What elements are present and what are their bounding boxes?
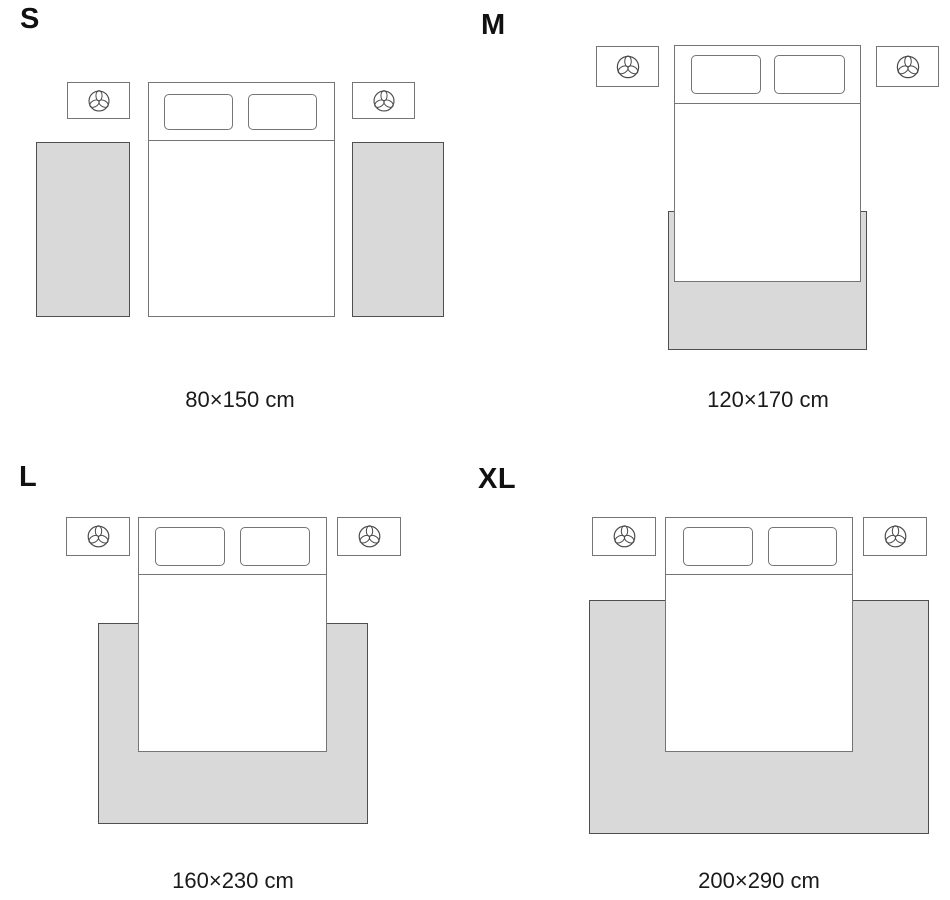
size-panel-m: M — [475, 0, 950, 450]
nightstand-left — [66, 517, 130, 556]
nightstand-left — [596, 46, 659, 87]
size-panel-s: S — [0, 0, 475, 450]
pillow-left — [155, 527, 225, 566]
pillow-right — [248, 94, 317, 130]
nightstand-left — [592, 517, 656, 556]
size-label-s: S — [20, 5, 40, 34]
pillow-left — [683, 527, 753, 566]
rug-dimensions-l: 160×230 cm — [123, 868, 343, 894]
pillow-right — [768, 527, 837, 566]
plant-icon — [612, 51, 644, 83]
pillow-left — [691, 55, 761, 94]
rug-dimensions-m: 120×170 cm — [658, 387, 878, 413]
size-label-l: L — [19, 463, 37, 492]
size-panel-xl: XL — [475, 450, 950, 900]
rug-runner-left — [36, 142, 130, 317]
plant-icon — [369, 86, 399, 116]
rug-dimensions-xl: 200×290 cm — [649, 868, 869, 894]
pillow-left — [164, 94, 233, 130]
bed — [148, 82, 335, 317]
plant-icon — [83, 521, 114, 552]
bed — [665, 517, 853, 752]
rug-dimensions-s: 80×150 cm — [130, 387, 350, 413]
pillow-right — [240, 527, 310, 566]
plant-icon — [609, 521, 640, 552]
rug-size-guide: S — [0, 0, 950, 900]
size-panel-l: L — [0, 450, 475, 900]
plant-icon — [892, 51, 924, 83]
size-label-m: M — [481, 11, 506, 40]
nightstand-right — [863, 517, 927, 556]
nightstand-right — [876, 46, 939, 87]
plant-icon — [84, 86, 114, 116]
pillow-right — [774, 55, 845, 94]
nightstand-right — [352, 82, 415, 119]
bed — [138, 517, 327, 752]
plant-icon — [354, 521, 385, 552]
size-label-xl: XL — [478, 465, 516, 494]
nightstand-right — [337, 517, 401, 556]
plant-icon — [880, 521, 911, 552]
nightstand-left — [67, 82, 130, 119]
bed — [674, 45, 861, 282]
rug-runner-right — [352, 142, 444, 317]
